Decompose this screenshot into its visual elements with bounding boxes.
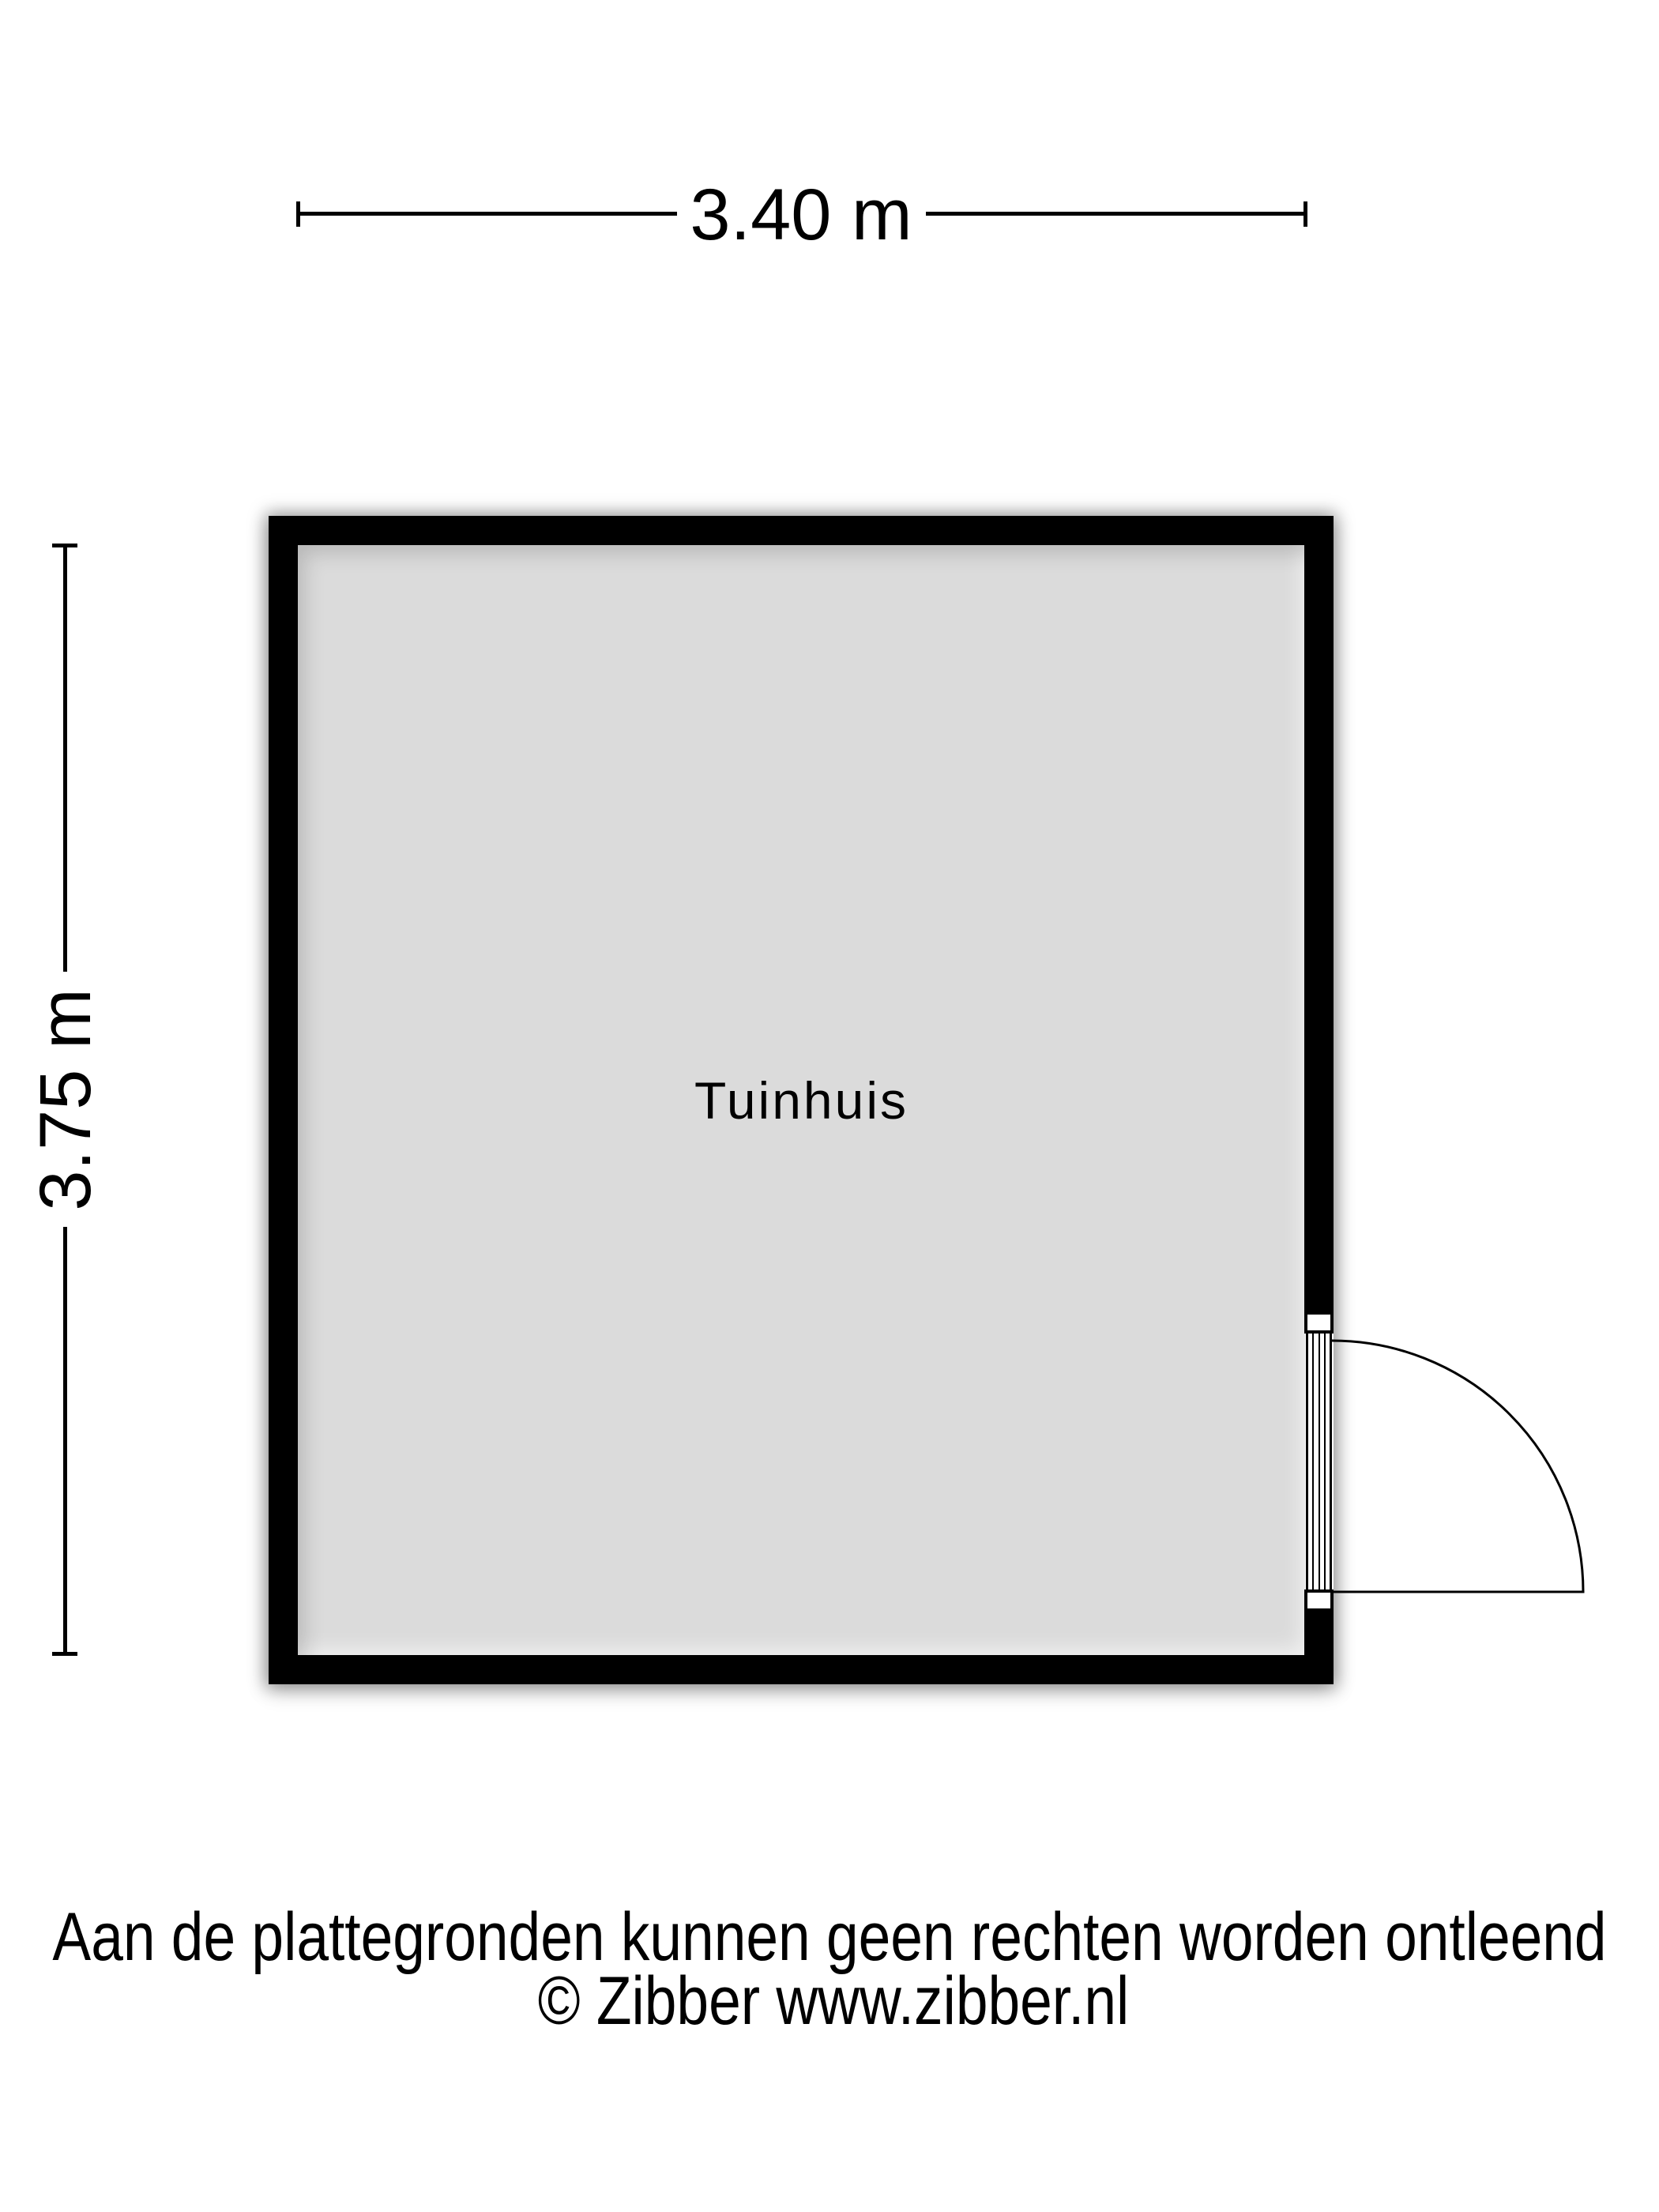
door-swing-arc bbox=[1303, 1303, 1635, 1619]
wall-top bbox=[269, 516, 1334, 545]
copyright-text: © Zibber www.zibber.nl bbox=[538, 1967, 1130, 2035]
dimension-line-segment bbox=[298, 212, 677, 216]
width-dimension-label: 3.40 m bbox=[690, 179, 912, 251]
wall-right-upper bbox=[1304, 516, 1334, 1313]
dimension-line-segment bbox=[63, 545, 67, 972]
room-tuinhuis-floor: Tuinhuis bbox=[298, 545, 1305, 1655]
wall-right-lower bbox=[1304, 1612, 1334, 1684]
door-arc-path bbox=[1332, 1341, 1583, 1592]
dimension-line-segment bbox=[926, 212, 1307, 216]
height-dimension-label: 3.75 m bbox=[29, 988, 102, 1210]
dimension-line-segment bbox=[63, 1227, 67, 1653]
wall-left bbox=[269, 516, 298, 1684]
floorplan-page: 3.40 m 3.75 m Tuinhuis Aan de plattegron… bbox=[0, 0, 1659, 2212]
room-label: Tuinhuis bbox=[694, 1074, 908, 1127]
dimension-tick bbox=[52, 1652, 77, 1656]
disclaimer-text: Aan de plattegronden kunnen geen rechten… bbox=[52, 1903, 1606, 1971]
dimension-tick bbox=[1303, 201, 1307, 227]
wall-bottom bbox=[269, 1655, 1334, 1684]
